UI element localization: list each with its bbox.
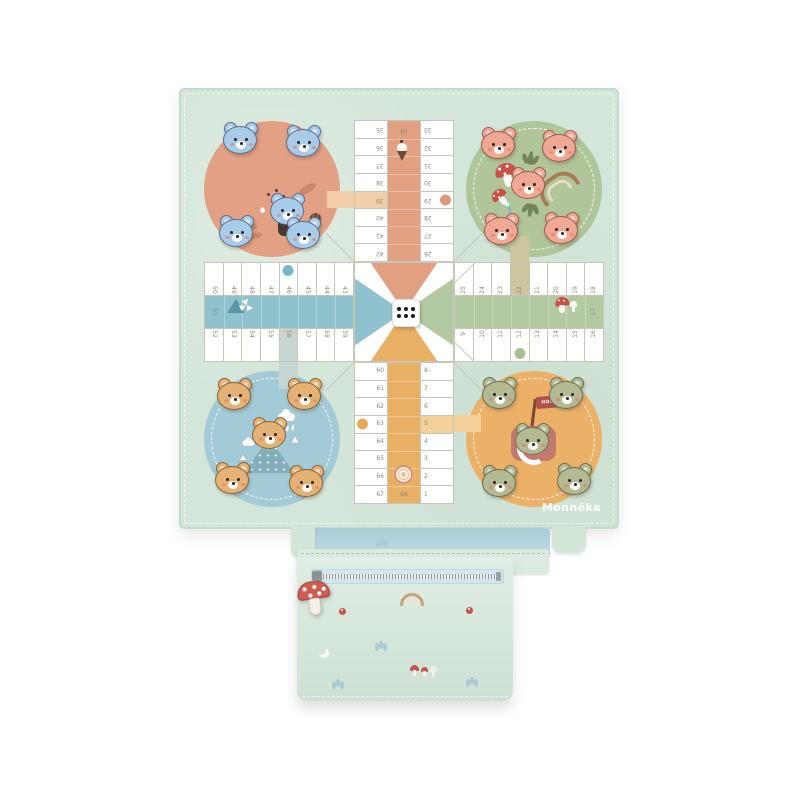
- track-cell: 26: [421, 244, 453, 261]
- bear-piece-blue[interactable]: [218, 215, 256, 248]
- die[interactable]: [392, 299, 420, 327]
- track-cell: 15: [567, 329, 585, 361]
- track-cell: 50: [205, 263, 223, 295]
- small-mountain-icon: [287, 432, 303, 446]
- track-cell: 16: [585, 329, 603, 361]
- track-cell: [388, 174, 420, 192]
- track-cell: 36: [355, 139, 387, 156]
- track-cell: 40: [355, 209, 387, 226]
- track-cell: 13: [530, 329, 548, 361]
- bear-piece-green[interactable]: [481, 465, 519, 498]
- track-cell: 53: [224, 329, 242, 361]
- track-cell: 52: [205, 329, 223, 361]
- bear-piece-peach[interactable]: [480, 127, 518, 160]
- track-arm-right: 2524232221201918 17 910111213141516: [454, 262, 604, 362]
- track-cell: [388, 433, 420, 451]
- track-cell: [298, 296, 317, 328]
- bear-illustration-peach: [510, 167, 548, 200]
- track-row: 5253545556575859: [205, 329, 353, 361]
- track-cell: [388, 398, 420, 416]
- track-cell: 23: [492, 263, 510, 295]
- track-cell: [455, 296, 474, 328]
- track-row: 5049484746454443: [205, 263, 353, 295]
- flower-icon: [339, 608, 346, 615]
- track-cell: 22: [511, 263, 529, 295]
- track-cell: [474, 296, 493, 328]
- track-cell: [388, 191, 420, 209]
- bear-piece-tan[interactable]: [288, 465, 326, 498]
- start-ramp-orange: [454, 415, 481, 432]
- fabric-flap: [552, 526, 586, 553]
- homerun-blue: 51: [205, 296, 353, 328]
- track-arm-top: 3536373839404142 34 3332313029282726: [354, 120, 454, 262]
- track-cell: 19: [567, 263, 585, 295]
- track-row: 910111213141516: [455, 329, 603, 361]
- track-cell: [279, 296, 298, 328]
- homerun-salmon: 34: [388, 121, 420, 261]
- track-cell: [566, 296, 585, 328]
- moon-icon: [319, 648, 329, 658]
- track-column: 3536373839404142: [355, 121, 387, 261]
- track-cell: [388, 451, 420, 469]
- track-cell: 29: [421, 192, 453, 209]
- track-cell: 55: [261, 329, 279, 361]
- track-cell: 6: [421, 398, 453, 415]
- track-cell: 54: [242, 329, 260, 361]
- bear-piece-blue[interactable]: [285, 125, 323, 158]
- homerun-green: 17: [455, 296, 603, 328]
- bear-piece-blue[interactable]: [285, 217, 323, 250]
- bear-piece-blue[interactable]: [222, 122, 260, 155]
- track-cell: 56: [280, 329, 298, 361]
- track-cell: [388, 156, 420, 174]
- game-mat: HOME 3536373839404142 34 333231302928272…: [179, 88, 619, 529]
- track-cell: [316, 296, 335, 328]
- track-cell: 11: [492, 329, 510, 361]
- track-cell: [388, 363, 420, 381]
- homerun-orange: 68: [388, 363, 420, 503]
- track-cell: 5: [421, 416, 453, 433]
- mushroom-zipper-charm[interactable]: [296, 579, 335, 619]
- track-cell: 41: [355, 227, 387, 244]
- track-cell: 57: [298, 329, 316, 361]
- track-cell: 68: [388, 486, 420, 504]
- track-cell: 67: [355, 486, 387, 503]
- bear-illustration-green: [514, 423, 552, 456]
- diagonal-line: [454, 233, 483, 262]
- start-ramp-salmon: [327, 191, 354, 208]
- track-cell: 58: [317, 329, 335, 361]
- track-cell: 51: [205, 296, 224, 328]
- bear-piece-peach[interactable]: [541, 130, 579, 163]
- track-cell: 1: [421, 486, 453, 503]
- track-cell: 20: [548, 263, 566, 295]
- bear-piece-peach[interactable]: [543, 212, 581, 245]
- center-goal: [354, 262, 454, 362]
- track-cell: 63: [355, 416, 387, 433]
- sprig-icon: [470, 677, 474, 685]
- track-cell: 64: [355, 434, 387, 451]
- track-cell: 34: [388, 121, 420, 139]
- track-cell: [388, 139, 420, 157]
- bear-illustration-tan: [251, 417, 289, 450]
- diagonal-line: [454, 362, 483, 391]
- track-cell: [388, 226, 420, 244]
- track-cell: [388, 416, 420, 434]
- track-cell: 43: [335, 263, 353, 295]
- track-cell: [224, 296, 243, 328]
- sprig-icon: [379, 641, 383, 649]
- bear-piece-green[interactable]: [548, 377, 586, 410]
- flower-icon: [466, 607, 473, 614]
- track-cell: 44: [317, 263, 335, 295]
- track-cell: 10: [474, 329, 492, 361]
- track-cell: 3: [421, 451, 453, 468]
- track-cell: 60: [355, 363, 387, 380]
- bear-piece-green[interactable]: [556, 463, 594, 496]
- bear-piece-tan[interactable]: [214, 462, 252, 495]
- bear-piece-tan[interactable]: [216, 378, 254, 411]
- track-cell: 49: [224, 263, 242, 295]
- track-cell: 24: [474, 263, 492, 295]
- bear-piece-tan[interactable]: [286, 378, 324, 411]
- track-arm-left: 5049484746454443 51 5253545556575859: [204, 262, 354, 362]
- bear-piece-peach[interactable]: [483, 213, 521, 246]
- track-cell: [261, 296, 280, 328]
- track-column: 87654321: [421, 363, 453, 503]
- zipper-stop: [496, 572, 501, 581]
- track-cell: [492, 296, 511, 328]
- track-cell: [529, 296, 548, 328]
- track-cell: 27: [421, 227, 453, 244]
- brand-label: Monnëka: [542, 501, 601, 514]
- track-cell: 65: [355, 451, 387, 468]
- track-cell: 21: [530, 263, 548, 295]
- track-cell: 62: [355, 398, 387, 415]
- track-cell: 17: [585, 296, 604, 328]
- track-cell: 33: [421, 121, 453, 138]
- track-cell: 39: [355, 192, 387, 209]
- sprig-icon: [380, 538, 384, 546]
- bear-piece-green[interactable]: [481, 377, 519, 410]
- track-cell: 28: [421, 209, 453, 226]
- track-cell: 31: [421, 156, 453, 173]
- track-cell: 35: [355, 121, 387, 138]
- track-cell: [388, 381, 420, 399]
- track-cell: 47: [261, 263, 279, 295]
- track-column: 3332313029282726: [421, 121, 453, 261]
- track-cell: 38: [355, 174, 387, 191]
- track-cell: 7: [421, 381, 453, 398]
- track-cell: [388, 468, 420, 486]
- track-cell: 37: [355, 156, 387, 173]
- track-cell: 12: [511, 329, 529, 361]
- track-cell: 61: [355, 381, 387, 398]
- product-photo: HOME 3536373839404142 34 333231302928272…: [0, 0, 800, 800]
- track-cell: 46: [280, 263, 298, 295]
- zipper: [311, 569, 504, 584]
- track-cell: [511, 296, 530, 328]
- track-cell: 32: [421, 139, 453, 156]
- track-cell: [548, 296, 567, 328]
- track-cell: [335, 296, 354, 328]
- track-cell: 8: [421, 363, 453, 380]
- track-cell: 42: [355, 244, 387, 261]
- track-cell: 2: [421, 469, 453, 486]
- track-cell: 48: [242, 263, 260, 295]
- track-column: 6061626364656667: [355, 363, 387, 503]
- mushrooms-icon: [410, 665, 438, 679]
- diagonal-line: [325, 362, 354, 391]
- track-cell: [242, 296, 261, 328]
- track-cell: 4: [421, 434, 453, 451]
- track-arm-bottom: 6061626364656667 68 87654321: [354, 362, 454, 504]
- sprig-icon: [336, 679, 340, 687]
- diagonal-line: [325, 233, 354, 262]
- heart-icon: [259, 207, 266, 214]
- track-cell: [388, 244, 420, 262]
- track-cell: 45: [298, 263, 316, 295]
- track-row: 2524232221201918: [455, 263, 603, 295]
- track-cell: 14: [548, 329, 566, 361]
- track-cell: [388, 209, 420, 227]
- track-cell: 18: [585, 263, 603, 295]
- track-cell: 30: [421, 174, 453, 191]
- track-cell: 66: [355, 469, 387, 486]
- track-cell: 59: [335, 329, 353, 361]
- zipper-teeth: [320, 574, 497, 579]
